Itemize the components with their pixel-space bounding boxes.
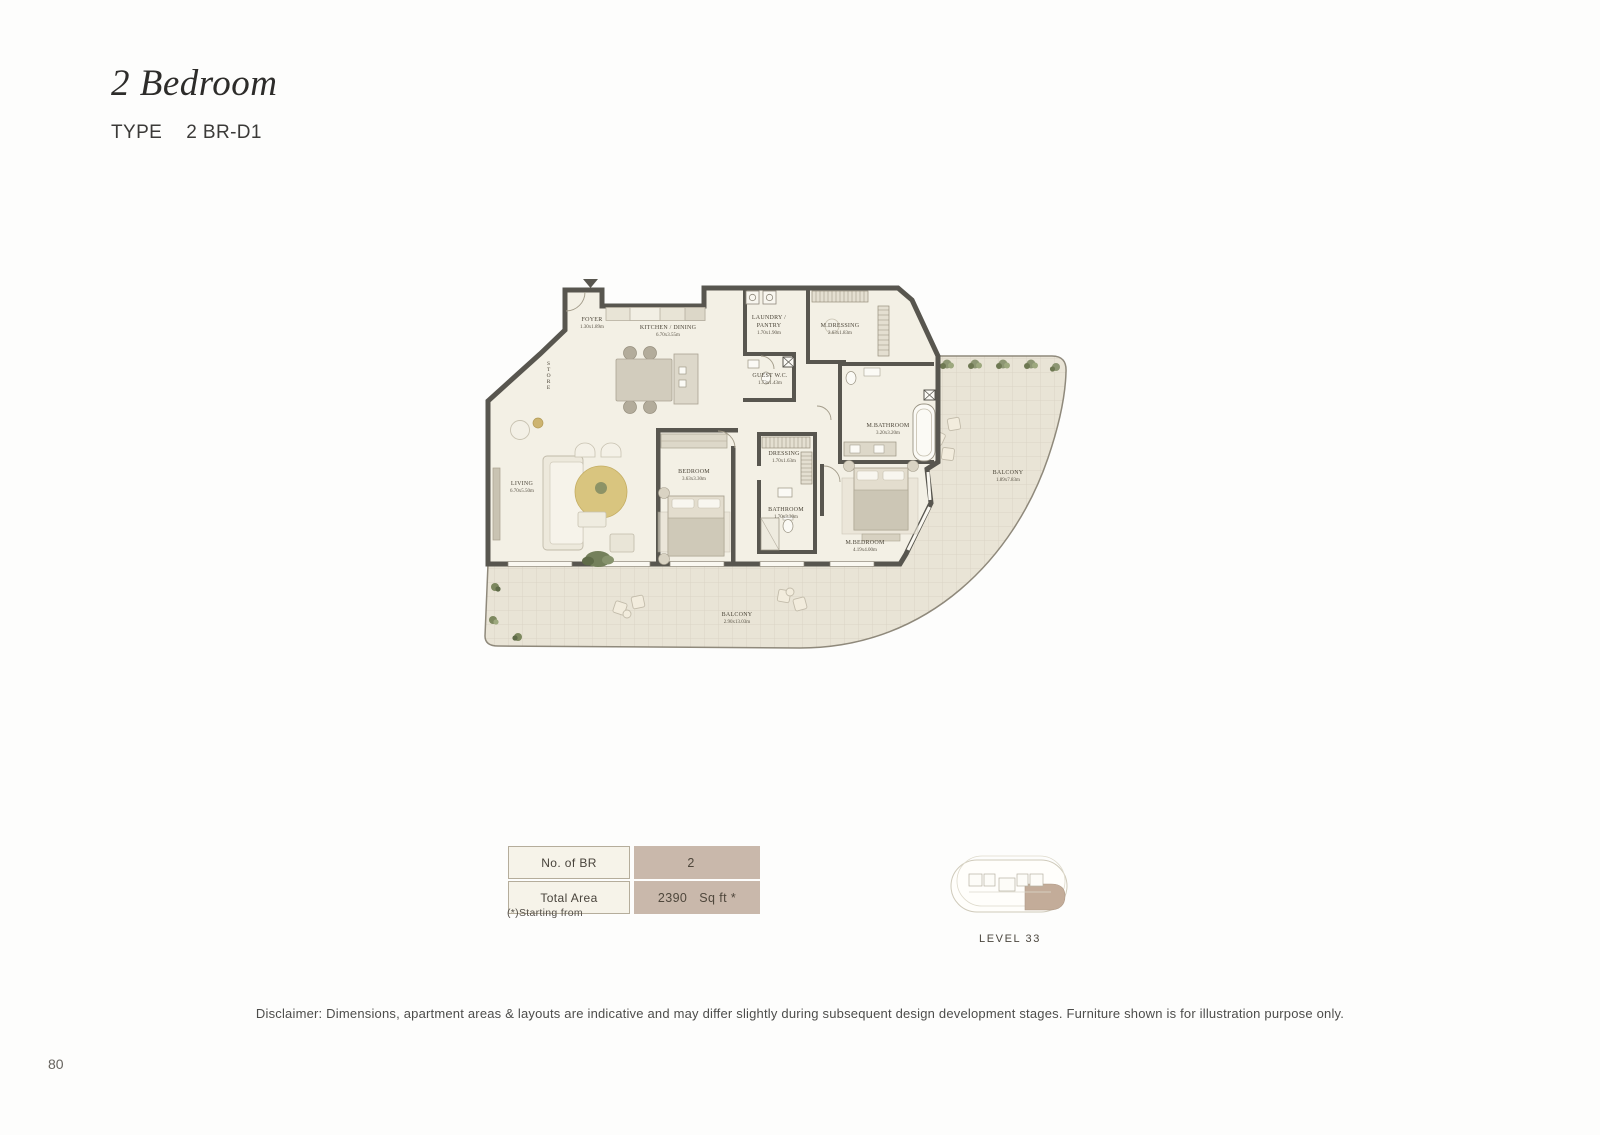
accent-chair xyxy=(610,534,634,552)
disclaimer: Disclaimer: Dimensions, apartment areas … xyxy=(0,1006,1600,1021)
keyplan: LEVEL 33 xyxy=(945,848,1075,945)
floorplan: FOYER1.30x1.89mKITCHEN / DINING6.70x3.55… xyxy=(480,260,1100,660)
unit-type-line: TYPE2 BR-D1 xyxy=(111,122,278,144)
spec-value: 2390 xyxy=(658,891,687,905)
entry-arrow-icon xyxy=(583,279,598,288)
keyplan-caption: LEVEL 33 xyxy=(945,933,1075,945)
page-title: 2 Bedroom xyxy=(111,62,278,105)
spec-value-cell: 2390Sq ft * xyxy=(634,881,760,914)
spec-table: No. of BR 2 Total Area 2390Sq ft * xyxy=(508,846,760,916)
rug-plant-icon xyxy=(595,482,607,494)
bed-icon xyxy=(658,488,730,565)
spec-unit: Sq ft * xyxy=(699,891,736,905)
brochure-page: 2 Bedroom TYPE2 BR-D1 xyxy=(0,0,1600,1135)
lounge-chair xyxy=(511,421,530,440)
header: 2 Bedroom TYPE2 BR-D1 xyxy=(111,62,278,144)
floorplan-svg xyxy=(480,260,1100,660)
starting-from-note: (*)Starting from xyxy=(507,907,583,919)
type-label: TYPE xyxy=(111,122,162,143)
bedroom-wardrobe xyxy=(661,434,727,448)
keyplan-svg xyxy=(945,848,1075,920)
spec-value: 2 xyxy=(687,856,694,870)
type-value: 2 BR-D1 xyxy=(186,122,262,143)
kitchen-island xyxy=(674,354,698,404)
side-lamp xyxy=(533,418,543,428)
spec-value-cell: 2 xyxy=(634,846,760,879)
sofa-icon xyxy=(543,456,583,550)
spec-label-cell: No. of BR xyxy=(508,846,630,879)
table-row: No. of BR 2 xyxy=(508,846,760,879)
page-number: 80 xyxy=(48,1056,64,1072)
tv-unit xyxy=(493,468,500,540)
keyplan-unit-highlight xyxy=(1025,884,1065,910)
coffee-table xyxy=(578,512,606,527)
kitchen-counter xyxy=(606,308,705,321)
